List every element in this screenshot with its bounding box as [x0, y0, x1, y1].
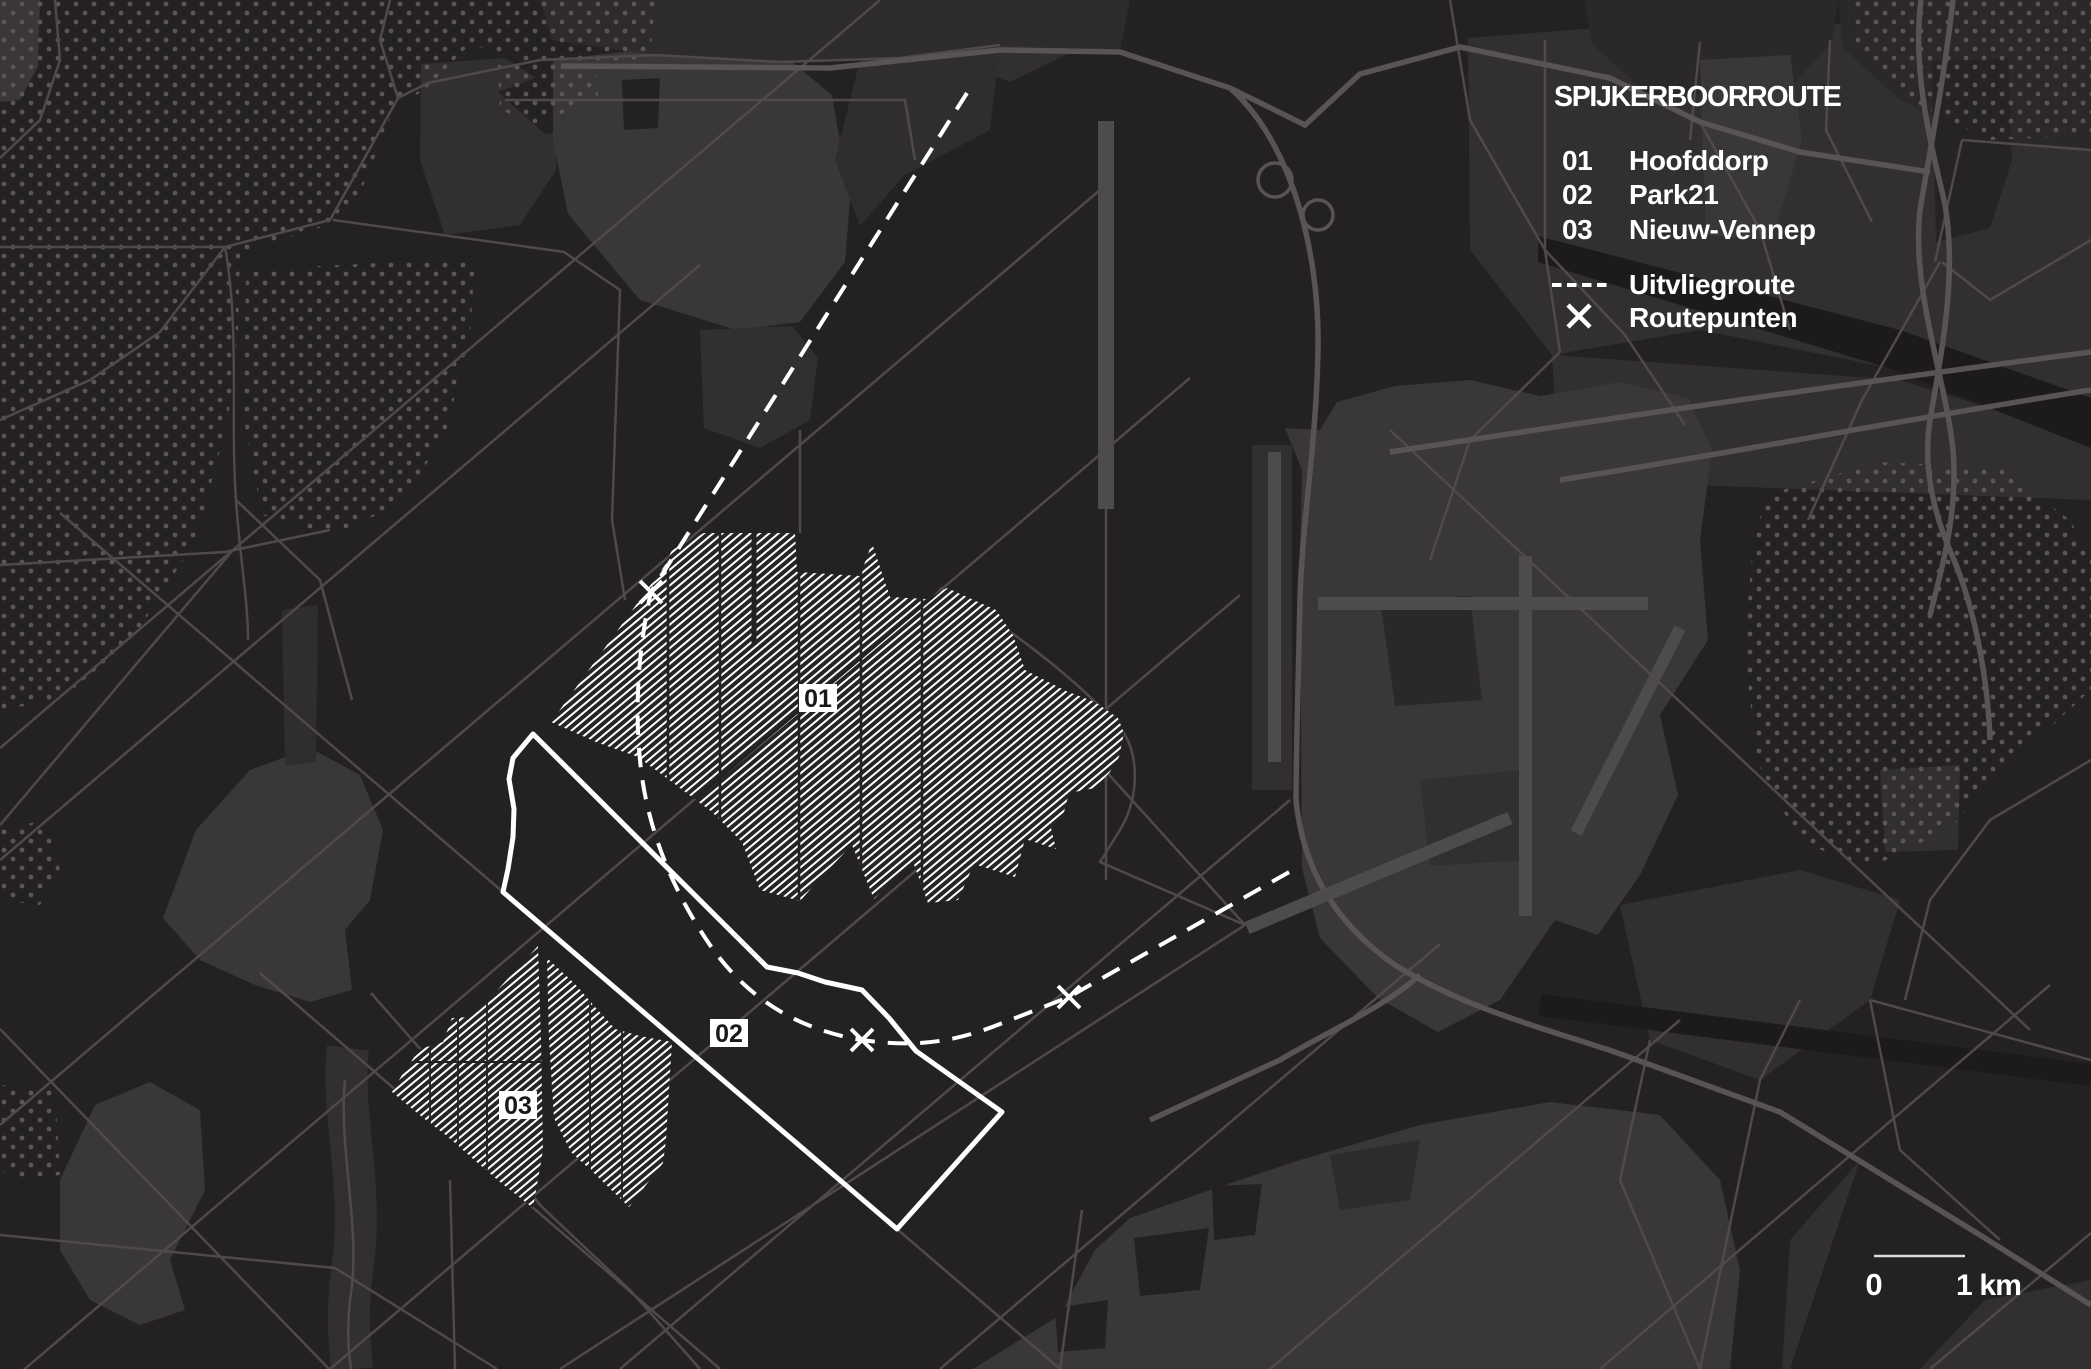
svg-text:Uitvliegroute: Uitvliegroute	[1629, 269, 1795, 300]
svg-text:Hoofddorp: Hoofddorp	[1629, 145, 1768, 176]
svg-text:03: 03	[504, 1092, 532, 1120]
svg-text:02: 02	[1562, 179, 1592, 210]
svg-text:01: 01	[804, 685, 832, 713]
svg-text:Nieuw-Vennep: Nieuw-Vennep	[1629, 214, 1816, 245]
svg-text:SPIJKERBOORROUTE: SPIJKERBOORROUTE	[1554, 81, 1841, 113]
svg-text:Routepunten: Routepunten	[1629, 302, 1797, 333]
svg-text:Park21: Park21	[1629, 179, 1718, 210]
svg-text:0: 0	[1865, 1267, 1882, 1302]
svg-text:03: 03	[1562, 214, 1592, 245]
svg-text:01: 01	[1562, 145, 1592, 176]
svg-text:1 km: 1 km	[1956, 1269, 2021, 1302]
svg-text:02: 02	[715, 1020, 743, 1048]
